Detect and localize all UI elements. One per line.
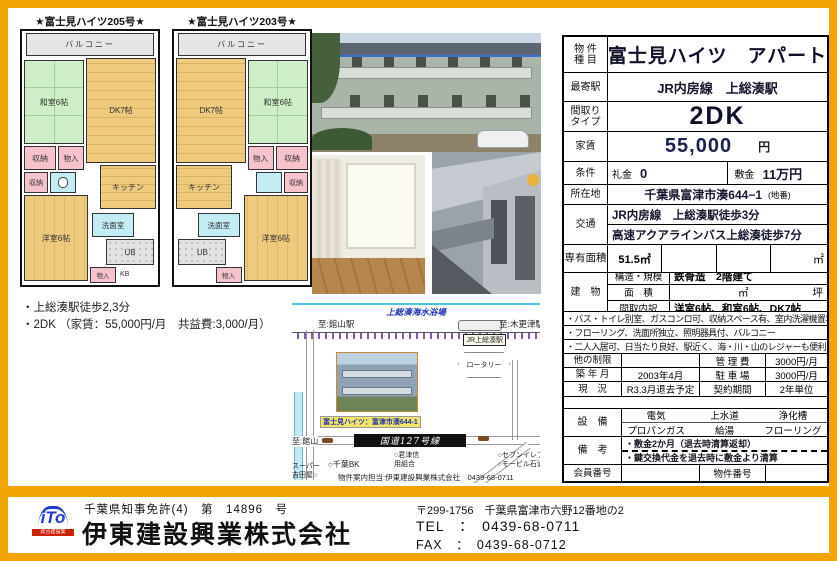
map-rotary: ロータリー xyxy=(458,352,510,378)
room-ub: UB xyxy=(178,239,226,265)
row-rent: 家賃 55,000 円 xyxy=(564,132,827,162)
row-restrictions: 他の制限 管 理 費 3000円/月 xyxy=(564,354,827,368)
row-conditions: 条件 礼金 0 敷金 11万円 xyxy=(564,162,827,185)
room-toilet xyxy=(256,172,282,193)
floorplan-203-drawing: バルコニー 和室6帖 DK7帖 収納 物入 収納 キッチン 洋室6帖 洗面室 U… xyxy=(172,29,312,287)
map-to-right-station: 至:木更津駅 xyxy=(499,318,540,330)
row-member-number: 会員番号 物件番号 xyxy=(564,465,827,481)
row-property-name: 物 件 種 目 富士見ハイツ アパート xyxy=(564,37,827,73)
nearest-station: JR内房線 上総湊駅 xyxy=(608,73,827,101)
current-status: R3.3月退去予定 xyxy=(622,382,700,396)
rent-unit: 円 xyxy=(758,138,770,155)
car-icon xyxy=(478,436,489,441)
room-yoshitsu: 洋室6帖 xyxy=(24,195,88,281)
car-icon xyxy=(322,438,333,443)
deposit: 11万円 xyxy=(762,164,802,183)
map-to-tateyama: 至:館山 xyxy=(292,436,318,447)
row-building: 建 物 構造・規模 鉄骨造 2階建て 面 積 ㎡ 坪 間取内訳 xyxy=(564,273,827,312)
building-exterior-photo xyxy=(312,33,541,152)
company-name: 伊東建設興業株式会社 xyxy=(82,515,352,551)
corridor-photo xyxy=(432,152,541,294)
map-beach-label: 上総湊海水浴場 xyxy=(292,303,540,318)
floorplan-203-title: ★富士見ハイツ203号★ xyxy=(172,14,312,29)
parking-fee: 3000円/月 xyxy=(766,368,827,381)
property-spec-table: 物 件 種 目 富士見ハイツ アパート 最寄駅 JR内房線 上総湊駅 間取り タ… xyxy=(562,35,829,483)
room-closet: 収納 xyxy=(24,146,56,170)
floor-area-value: 51.5㎡ xyxy=(608,245,662,272)
flyer-page: ★富士見ハイツ205号★ バルコニー 和室6帖 DK7帖 収納 物入 収納 キッ… xyxy=(0,0,837,561)
room-monoire: 物入 xyxy=(58,146,84,170)
layout-type: 2DK xyxy=(608,102,827,131)
row-layout-type: 間取り タイプ 2DK xyxy=(564,102,827,132)
remark-2: ・鍵交換代金を退去時に敷金より清算 xyxy=(622,450,827,465)
room-balcony: バルコニー xyxy=(26,33,154,56)
row-nearest-station: 最寄駅 JR内房線 上総湊駅 xyxy=(564,73,827,102)
room-senmen: 洗面室 xyxy=(198,213,240,237)
contract-period: 2年単位 xyxy=(766,382,827,396)
room-monoire-2: 物入 xyxy=(216,267,242,283)
row-equipment: 設 備 電気 上水道 浄化槽 プロパンガス 給湯 フローリング xyxy=(564,409,827,437)
label-property-type: 物 件 xyxy=(574,44,597,55)
property-name: 富士見ハイツ アパート xyxy=(608,37,827,72)
main-area: ★富士見ハイツ205号★ バルコニー 和室6帖 DK7帖 収納 物入 収納 キッ… xyxy=(8,8,829,486)
map-station-label: JR上総湊駅 xyxy=(463,334,506,346)
company-logo: iTo 総合建設業 xyxy=(32,506,74,536)
map-building-inset-photo xyxy=(336,352,418,412)
room-senmen: 洗面室 xyxy=(92,213,134,237)
map-road-vertical xyxy=(306,330,314,480)
room-dk: DK7帖 xyxy=(176,58,246,163)
poi-chiba-bank: ○千葉BK xyxy=(328,461,360,470)
room-closet: 収納 xyxy=(276,146,308,170)
room-breakdown: 洋室6帖、和室6帖、DK7帖 xyxy=(670,301,827,312)
row-access: 交通 JR内房線 上総湊駅徒歩3分 高速アクアラインバス上総湊徒歩7分 xyxy=(564,205,827,245)
map-road-vertical-2 xyxy=(512,360,518,440)
lamp-icon xyxy=(527,174,539,186)
poi-supermarket: スーパー 吉田屋○ xyxy=(292,463,320,480)
row-empty xyxy=(564,397,827,409)
equip-septic: 浄化槽 xyxy=(759,409,827,422)
toilet-bowl-icon xyxy=(58,177,68,188)
equip-gas: プロパンガス xyxy=(622,423,690,436)
built-date: 2003年4月 xyxy=(622,368,700,381)
row-floor-area: 専有面積 51.5㎡ ㎡ xyxy=(564,245,827,273)
plan-notes: ・上総湊駅徒歩2,3分 ・2DK （家賃：55,000円/月 共益費:3,000… xyxy=(22,300,312,334)
building-roof xyxy=(312,43,541,57)
feature-note-1: ・バス・トイレ別室、ガスコンロ可、収納スペース有、室内洗濯機置場 xyxy=(564,312,827,326)
room-balcony: バルコニー xyxy=(178,33,306,56)
equip-electric: 電気 xyxy=(622,409,690,422)
room-washitsu: 和室6帖 xyxy=(248,60,308,144)
access-line-1: JR内房線 上総湊駅徒歩3分 xyxy=(608,205,827,224)
company-fax: FAX ： 0439-68-0712 xyxy=(416,534,567,553)
logo-ito-icon: iTo xyxy=(38,506,69,527)
feature-note-2: ・フローリング、洗面所独立、照明器具付、バルコニー xyxy=(564,326,827,340)
poi-shinyokumiai: ○君津信 用組合 xyxy=(394,452,419,469)
key-money: 0 xyxy=(640,166,647,181)
train-icon xyxy=(458,320,502,331)
floorplan-205: ★富士見ハイツ205号★ バルコニー 和室6帖 DK7帖 収納 物入 収納 キッ… xyxy=(20,14,160,287)
map-agent-line: 物件案内担当:伊東建設興業株式会社 0439-68-0711 xyxy=(338,472,514,483)
management-fee: 3000円/月 xyxy=(766,354,827,367)
row-remarks: 備 考 ・敷金2か月（退去時清算返却） ・鍵交換代金を退去時に敷金より清算 xyxy=(564,437,827,465)
access-line-2: 高速アクアラインバス上総湊徒歩7分 xyxy=(608,224,827,244)
room-washitsu: 和室6帖 xyxy=(24,60,84,144)
room-kitchen: キッチン xyxy=(100,165,156,209)
property-address: 千葉県富津市湊644−1 xyxy=(644,186,762,203)
plan-note-walk: ・上総湊駅徒歩2,3分 xyxy=(22,300,312,317)
room-kitchen: キッチン xyxy=(176,165,232,209)
poi-right-edge: ○セブンイレブン ○モービル石油GS xyxy=(498,452,540,469)
room-kb-label: KB xyxy=(120,271,129,278)
map-to-left-station: 至:館山駅 xyxy=(318,318,354,330)
logo-band: 総合建設業 xyxy=(32,529,74,536)
room-dk: DK7帖 xyxy=(86,58,156,163)
map-route127-banner: 国道127号線 xyxy=(354,434,466,447)
plan-note-rent: ・2DK （家賃：55,000円/月 共益費:3,000/月） xyxy=(22,317,312,334)
row-address: 所在地 千葉県富津市湊644−1 (地番) xyxy=(564,185,827,205)
company-tel: TEL ： 0439-68-0711 xyxy=(416,516,580,536)
row-built-date: 築 年 月 2003年4月 駐 車 場 3000円/月 xyxy=(564,368,827,382)
company-footer: iTo 総合建設業 千葉県知事免許(4) 第 14896 号 伊東建設興業株式会… xyxy=(8,497,829,553)
equip-hotwater: 給湯 xyxy=(690,423,758,436)
interior-room-photo xyxy=(312,155,425,294)
floorplan-203: ★富士見ハイツ203号★ バルコニー 和室6帖 DK7帖 収納 物入 収納 キッ… xyxy=(172,14,312,287)
map-inset-caption: 富士見ハイツ：富津市湊644-1 xyxy=(320,416,421,428)
room-closet-2: 収納 xyxy=(24,172,48,193)
floorplan-205-drawing: バルコニー 和室6帖 DK7帖 収納 物入 収納 キッチン 洋室6帖 洗面室 U… xyxy=(20,29,160,287)
room-monoire: 物入 xyxy=(248,146,274,170)
equip-water: 上水道 xyxy=(690,409,758,422)
feature-note-3: ・二人入居可、日当たり良好、駅近く、海・川・山のレジャーも便利 xyxy=(564,340,827,354)
equip-flooring: フローリング xyxy=(759,423,827,436)
room-yoshitsu: 洋室6帖 xyxy=(244,195,308,281)
room-monoire-2: 物入 xyxy=(90,267,116,283)
access-map: 上総湊海水浴場 至:館山駅 至:木更津駅 JR上総湊駅 ロータリー 富士見ハイツ… xyxy=(292,300,540,483)
room-ub: UB xyxy=(106,239,154,265)
remark-1: ・敷金2か月（退去時清算返却） xyxy=(622,437,827,450)
room-closet-2: 収納 xyxy=(284,172,308,193)
parked-car xyxy=(477,130,529,148)
structure-scale: 鉄骨造 2階建て xyxy=(670,273,827,284)
rent-amount: 55,000 xyxy=(665,135,732,158)
floorplan-205-title: ★富士見ハイツ205号★ xyxy=(20,14,160,29)
floor-area-unit: ㎡ xyxy=(771,245,827,272)
row-current-status: 現 況 R3.3月退去予定 契約期間 2年単位 xyxy=(564,382,827,397)
